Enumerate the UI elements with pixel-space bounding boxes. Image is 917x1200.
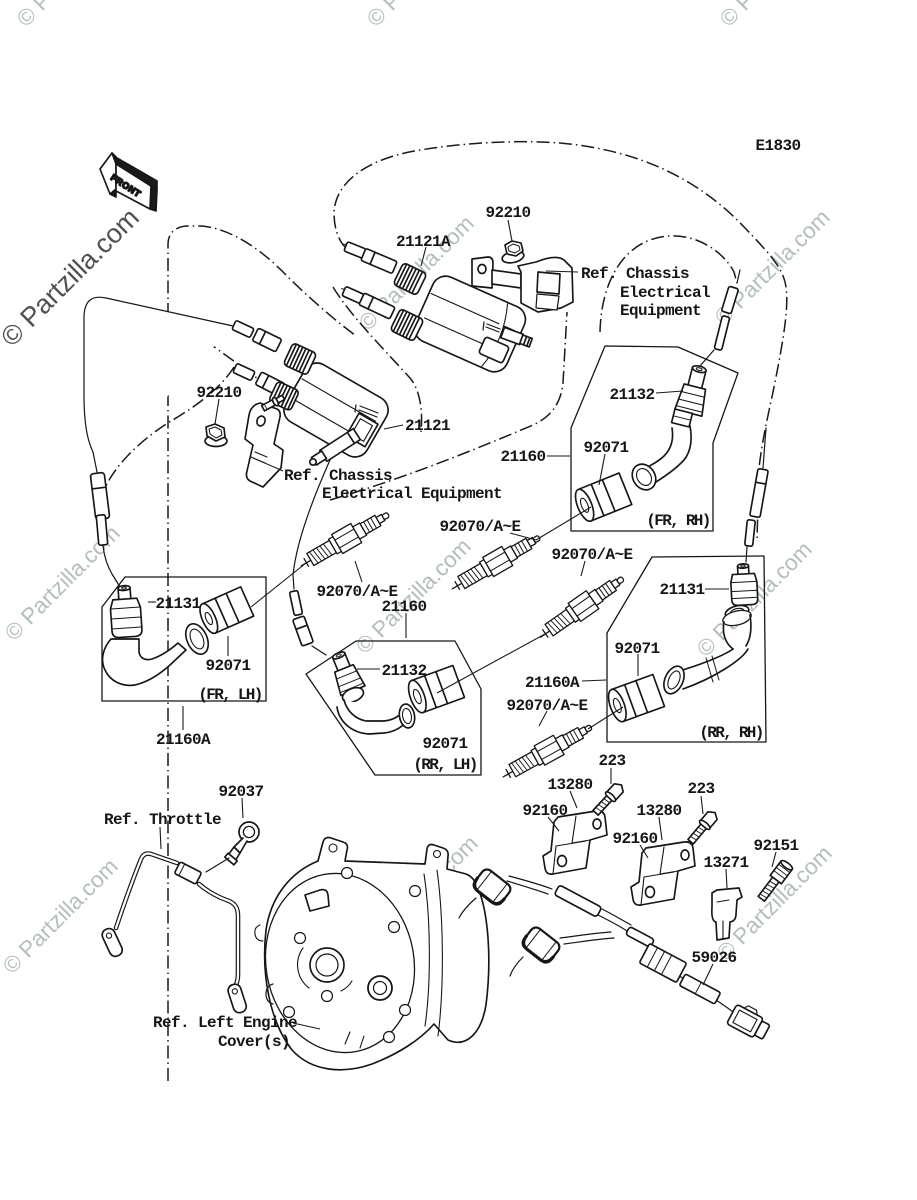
svg-text:(FR, LH): (FR, LH) bbox=[198, 686, 261, 704]
svg-text:13280: 13280 bbox=[636, 802, 681, 820]
svg-text:Ref. Throttle: Ref. Throttle bbox=[104, 811, 221, 829]
svg-text:59026: 59026 bbox=[691, 949, 736, 967]
svg-text:92151: 92151 bbox=[753, 837, 798, 855]
svg-text:(FR, RH): (FR, RH) bbox=[646, 512, 709, 530]
svg-text:92071: 92071 bbox=[205, 657, 250, 675]
svg-text:13271: 13271 bbox=[703, 854, 748, 872]
svg-text:21160A: 21160A bbox=[156, 731, 211, 749]
svg-text:13280: 13280 bbox=[547, 776, 592, 794]
svg-text:223: 223 bbox=[687, 780, 714, 798]
svg-text:92070/A~E: 92070/A~E bbox=[439, 518, 520, 536]
svg-text:21131: 21131 bbox=[659, 581, 704, 599]
svg-text:Ref. Left Engine: Ref. Left Engine bbox=[153, 1014, 297, 1032]
svg-text:Cover(s): Cover(s) bbox=[218, 1033, 290, 1051]
svg-text:21121A: 21121A bbox=[396, 233, 451, 251]
svg-text:92210: 92210 bbox=[485, 204, 530, 222]
svg-text:92070/A~E: 92070/A~E bbox=[551, 546, 632, 564]
svg-text:21160A: 21160A bbox=[525, 674, 580, 692]
svg-text:92037: 92037 bbox=[218, 783, 263, 801]
svg-text:92071: 92071 bbox=[583, 439, 628, 457]
svg-text:Ref. Chassis: Ref. Chassis bbox=[284, 467, 392, 485]
svg-text:92160: 92160 bbox=[612, 830, 657, 848]
svg-text:21160: 21160 bbox=[500, 448, 545, 466]
svg-text:21132: 21132 bbox=[609, 386, 654, 404]
svg-text:E1830: E1830 bbox=[755, 137, 800, 155]
svg-text:92160: 92160 bbox=[522, 802, 567, 820]
svg-text:(RR, LH): (RR, LH) bbox=[413, 756, 476, 774]
svg-text:Electrical: Electrical bbox=[620, 284, 710, 302]
svg-text:92071: 92071 bbox=[422, 735, 467, 753]
svg-text:92071: 92071 bbox=[614, 640, 659, 658]
svg-text:21132: 21132 bbox=[381, 662, 426, 680]
svg-text:21160: 21160 bbox=[381, 598, 426, 616]
svg-text:21131: 21131 bbox=[155, 595, 200, 613]
svg-text:21121: 21121 bbox=[405, 417, 450, 435]
svg-text:Ref. Chassis: Ref. Chassis bbox=[581, 265, 689, 283]
svg-text:223: 223 bbox=[598, 752, 625, 770]
svg-text:92070/A~E: 92070/A~E bbox=[506, 697, 587, 715]
svg-text:92210: 92210 bbox=[196, 384, 241, 402]
svg-text:Electrical Equipment: Electrical Equipment bbox=[322, 485, 502, 503]
svg-text:Equipment: Equipment bbox=[620, 302, 701, 320]
svg-text:(RR, RH): (RR, RH) bbox=[699, 724, 762, 742]
